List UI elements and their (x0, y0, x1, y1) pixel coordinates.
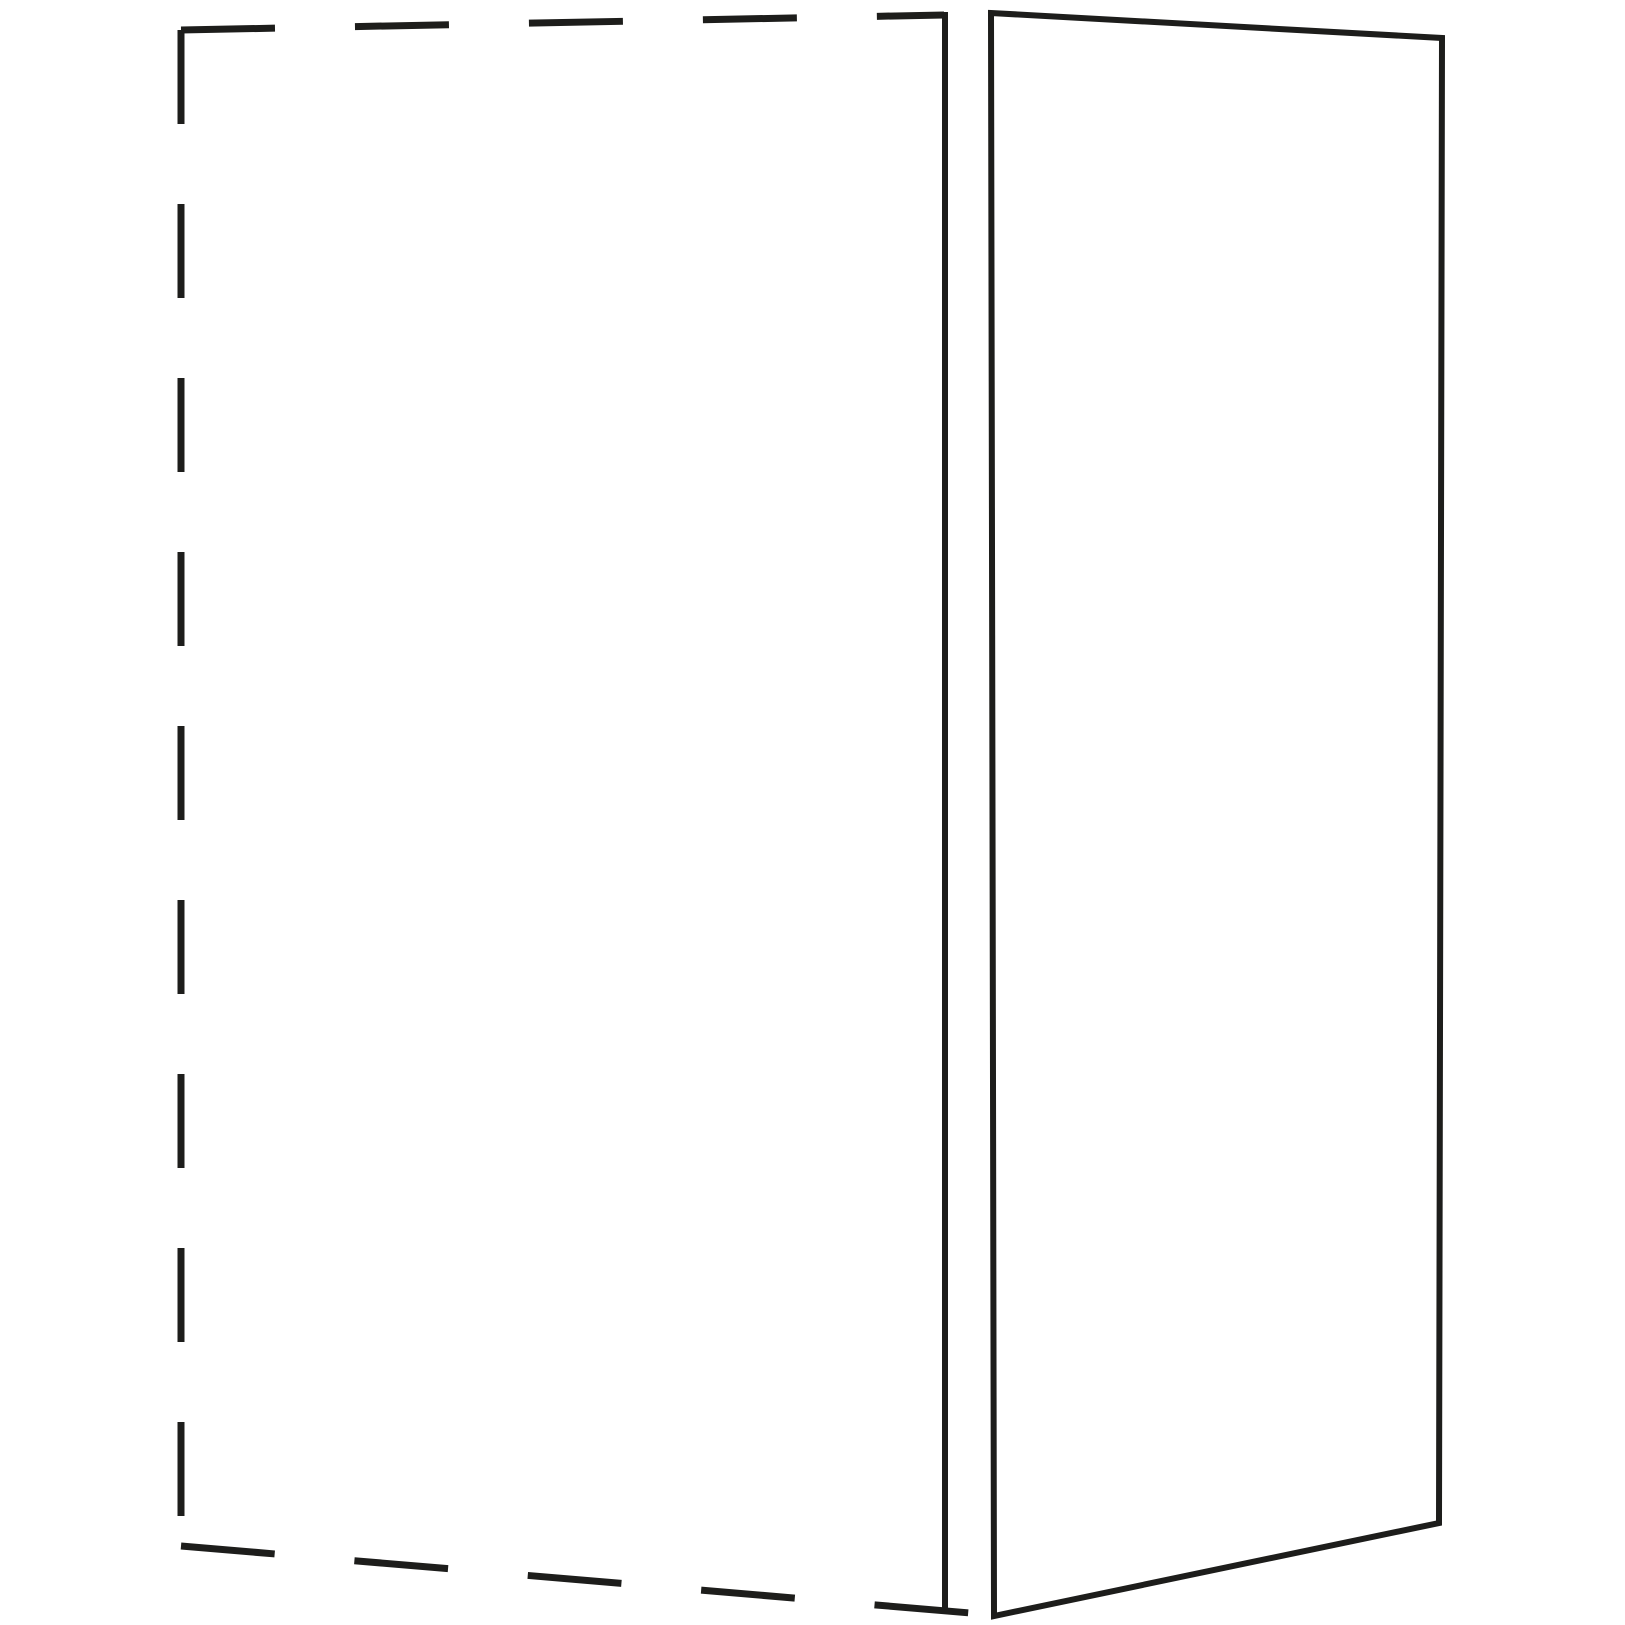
cabinet-side-panel-diagram (0, 0, 1625, 1625)
side-panel-face-outline (991, 13, 1442, 1616)
hidden-cabinet-bottom-edge (181, 1546, 994, 1615)
drawing-canvas (0, 0, 1625, 1625)
hidden-cabinet-top-edge (181, 15, 944, 30)
